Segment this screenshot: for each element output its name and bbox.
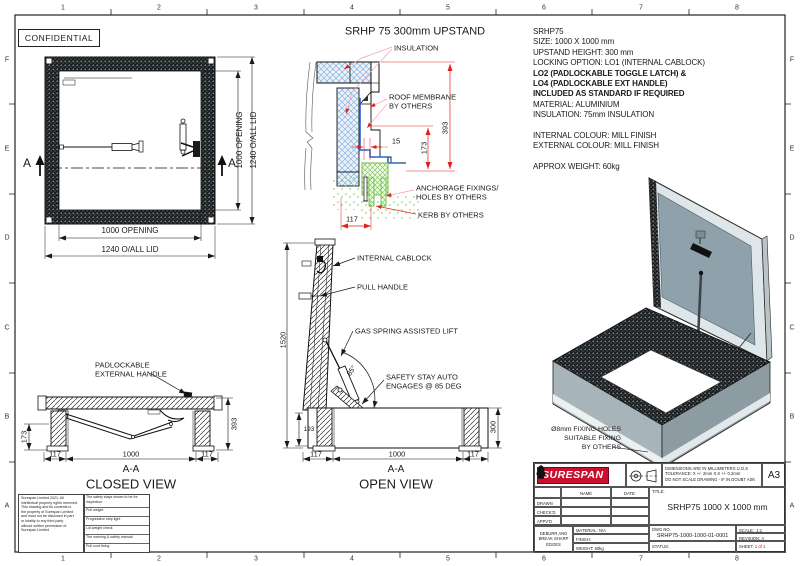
open-dim-opening: 1000 — [389, 450, 406, 458]
spec-line: APPROX WEIGHT: 60kg — [533, 162, 705, 172]
grid-col-label: 4 — [350, 5, 354, 12]
grid-col-label: 3 — [254, 5, 258, 12]
open-dim-1520: 1520 — [279, 332, 287, 349]
label-insulation: INSULATION — [394, 44, 438, 52]
spec-block: SRHP75 SIZE: 1000 X 1000 mm UPSTAND HEIG… — [533, 27, 705, 172]
drawn-name-cell — [561, 498, 611, 507]
checked-row: CHECK'D — [534, 507, 561, 516]
spec-line: LOCKING OPTION: LO1 (INTERNAL CABLOCK) — [533, 58, 705, 68]
label-internal-cablock: INTERNAL CABLOCK — [357, 254, 432, 262]
deburr-cell: DEBURR AND BREAK SHARP EDGES — [534, 525, 573, 553]
upstand-title: SRHP 75 300mm UPSTAND — [345, 27, 485, 38]
dim-kerb-width: 117 — [346, 215, 358, 223]
projection-symbol-cell — [626, 463, 662, 487]
grid-row-label: A — [5, 503, 10, 510]
closed-dim-173: 173 — [20, 431, 28, 444]
status-label: STATUS: — [652, 544, 669, 549]
label-kerb: KERB BY OTHERS — [418, 211, 484, 219]
surespan-emblem-icon — [535, 464, 547, 480]
open-dim-193: 193 — [304, 427, 315, 434]
plan-dim-overall: 1240 O/ALL LID — [101, 246, 158, 254]
notes-cell: DIMENSIONS ARE IN MILLIMETERS U.O.S TOLE… — [662, 463, 762, 487]
upstand-section-drawing — [305, 47, 455, 230]
label-roof-membrane-2: BY OTHERS — [389, 102, 432, 110]
closed-caption: CLOSED VIEW — [86, 478, 176, 491]
spec-line — [533, 152, 705, 162]
label-fixing-line: SUITABLE FIXING — [551, 435, 621, 444]
open-dim-right: 117 — [467, 450, 479, 458]
grid-col-label: 6 — [542, 556, 546, 563]
finish-label: FINISH: — [576, 537, 591, 542]
grid-row-label: A — [790, 503, 795, 510]
grid-col-label: 8 — [735, 556, 739, 563]
grid-col-label: 2 — [157, 556, 161, 563]
sheet-value: 1 of 1 — [755, 544, 765, 549]
grid-col-label: 5 — [446, 5, 450, 12]
label-fixing-holes: Ø8mm FIXING HOLES SUITABLE FIXING BY OTH… — [551, 426, 621, 453]
weight-row: WEIGHT: 60kg — [573, 543, 649, 553]
label-fixing-line: BY OTHERS — [551, 444, 621, 453]
grid-row-label: F — [5, 57, 9, 64]
confidential-stamp: CONFIDENTIAL — [18, 29, 100, 47]
revision-cell: REVISION: A — [736, 533, 786, 541]
finish-row: FINISH: — [573, 534, 649, 543]
revision-value: A — [761, 536, 764, 541]
label-pull-handle: PULL HANDLE — [357, 283, 408, 291]
drawing-sheet: 1 2 3 4 5 6 7 8 1 2 3 4 5 6 7 8 F E D C … — [0, 0, 800, 566]
status-cell: STATUS: — [649, 541, 736, 553]
grid-col-label: 8 — [735, 5, 739, 12]
row-approved: APPV'D — [537, 519, 552, 524]
sheet-label: SHEET: — [739, 544, 754, 549]
grid-col-label: 7 — [639, 556, 643, 563]
closed-section-ref: A-A — [123, 465, 140, 475]
iso-view-drawing — [553, 178, 772, 468]
nd-corner-cell — [534, 487, 561, 498]
grid-col-label: 4 — [350, 556, 354, 563]
drawn-date-cell — [611, 498, 649, 507]
logo-cell: SURESPAN — [534, 463, 626, 487]
label-roof-membrane: ROOF MEMBRANE — [389, 93, 456, 101]
open-dim-left: 117 — [310, 450, 322, 458]
grid-row-label: B — [790, 414, 795, 421]
third-angle-projection-icon — [629, 467, 659, 485]
deburr-line: BREAK SHARP — [535, 536, 572, 541]
drawing-title: SRHP75 1000 X 1000 mm — [650, 502, 785, 512]
checked-date-cell — [611, 507, 649, 516]
name-header-cell: NAME — [561, 487, 611, 498]
label-anchorage: ANCHORAGE FIXINGS/ — [416, 184, 499, 192]
grid-row-label: E — [5, 146, 10, 153]
title-cell: TITLE: SRHP75 1000 X 1000 mm — [649, 487, 786, 525]
label-padlockable: PADLOCKABLE — [95, 361, 149, 369]
label-anchorage-2: HOLES BY OTHERS — [416, 193, 487, 201]
checked-name-cell — [561, 507, 611, 516]
checklist-box: The safety stays shown to be for inspect… — [84, 494, 150, 553]
copyright-box: Surespan Limited 2021. All intellectual … — [18, 494, 84, 553]
grid-col-label: 1 — [61, 556, 65, 563]
grid-row-label: D — [4, 235, 9, 242]
dim-inner-height: 173 — [420, 142, 428, 155]
label-external-handle: EXTERNAL HANDLE — [95, 370, 167, 378]
spec-line: LO2 (PADLOCKABLE TOGGLE LATCH) & — [533, 69, 705, 79]
dim-liner-gap: 15 — [392, 137, 400, 145]
scale-value: 1:1 — [756, 528, 762, 533]
sheet-size-cell: A3 — [762, 463, 786, 487]
closed-dim-left: 117 — [49, 450, 61, 458]
material-value: N/A — [599, 528, 606, 533]
approved-row: APPV'D — [534, 516, 561, 525]
dim-overall-height: 393 — [441, 122, 449, 135]
title-label: TITLE: — [652, 489, 665, 494]
drawn-row: DRAWN — [534, 498, 561, 507]
closed-dim-right: 117 — [201, 450, 213, 458]
spec-line: SIZE: 1000 X 1000 mm — [533, 37, 705, 47]
grid-col-label: 1 — [61, 5, 65, 12]
spec-line — [533, 121, 705, 131]
material-row: MATERIAL: N/A — [573, 525, 649, 534]
grid-row-label: C — [4, 325, 9, 332]
grid-row-label: F — [790, 57, 794, 64]
dwg-no-cell: DWG NO. SRHP75-1000-1000-01-0001 — [649, 525, 736, 541]
sheet-cell: SHEET: 1 of 1 — [736, 541, 786, 553]
grid-row-label: B — [5, 414, 10, 421]
label-fixing-line: Ø8mm FIXING HOLES — [551, 426, 621, 435]
grid-row-label: E — [790, 146, 795, 153]
spec-line: EXTERNAL COLOUR: MILL FINISH — [533, 141, 705, 151]
material-label: MATERIAL: — [576, 528, 598, 533]
plan-dim-opening: 1000 OPENING — [102, 227, 159, 235]
grid-col-label: 7 — [639, 5, 643, 12]
col-date: DATE: — [624, 491, 636, 496]
sheet-size: A3 — [768, 470, 780, 481]
spec-line: INSULATION: 75mm INSULATION — [533, 110, 705, 120]
title-block: SURESPAN DIMENSIONS ARE IN MILLIMETERS U… — [533, 462, 785, 552]
section-marker-a-right: A — [228, 157, 236, 169]
checklist-row: Progressive strip light — [85, 517, 149, 526]
grid-col-label: 6 — [542, 5, 546, 12]
spec-line: MATERIAL: ALUMINIUM — [533, 100, 705, 110]
deburr-line: EDGES — [535, 542, 572, 547]
row-drawn: DRAWN — [537, 501, 553, 506]
open-section-ref: A-A — [388, 465, 405, 475]
revision-label: REVISION: — [739, 536, 760, 541]
col-name: NAME — [580, 491, 592, 496]
closed-dim-393: 393 — [230, 418, 238, 431]
grid-col-label: 2 — [157, 5, 161, 12]
label-safety-stay: SAFETY STAY AUTO — [386, 373, 458, 381]
approved-date-cell — [611, 516, 649, 525]
spec-line: UPSTAND HEIGHT: 300 mm — [533, 48, 705, 58]
label-safety-stay-2: ENGAGES @ 85 DEG — [386, 382, 462, 390]
closed-dim-opening: 1000 — [123, 450, 140, 458]
open-view-drawing — [283, 239, 502, 462]
scale-cell: SCALE: 1:1 — [736, 525, 786, 533]
note-line: DO NOT SCALE DRAWING - IF IN DOUBT ASK — [665, 477, 759, 482]
grid-row-label: C — [789, 325, 794, 332]
copyright-line: Surespan Limited — [20, 528, 82, 533]
plan-dim-opening-v: 1000 OPENING — [236, 112, 244, 169]
label-gas-spring: GAS SPRING ASSISTED LIFT — [355, 327, 458, 335]
scale-label: SCALE: — [739, 528, 754, 533]
grid-col-label: 3 — [254, 556, 258, 563]
plan-dim-overall-v: 1240 O/ALL LID — [250, 111, 258, 168]
checklist-row: Lid weight check — [85, 526, 149, 535]
checklist-row: The safety stays shown to be for inspect… — [85, 495, 149, 508]
spec-line: SRHP75 — [533, 27, 705, 37]
weight-label: WEIGHT: — [576, 546, 593, 551]
checklist-row: Pull cord fixing — [85, 544, 149, 552]
spec-line: INCLUDED AS STANDARD IF REQUIRED — [533, 89, 705, 99]
section-marker-a-left: A — [23, 157, 31, 169]
dwg-number: SRHP75-1000-1000-01-0001 — [650, 533, 735, 539]
row-checked: CHECK'D — [537, 510, 555, 515]
approved-name-cell — [561, 516, 611, 525]
weight-value: 60kg — [595, 546, 604, 551]
spec-line: LO4 (PADLOCKABLE EXT HANDLE) — [533, 79, 705, 89]
spec-line: INTERNAL COLOUR: MILL FINISH — [533, 131, 705, 141]
dwg-label: DWG NO. — [652, 527, 671, 532]
grid-row-label: D — [789, 235, 794, 242]
grid-col-label: 5 — [446, 556, 450, 563]
checklist-row: The warning & safety manual — [85, 535, 149, 544]
surespan-logo: SURESPAN — [537, 467, 609, 484]
date-header-cell: DATE: — [611, 487, 649, 498]
checklist-row: Pull weight — [85, 508, 149, 517]
open-caption: OPEN VIEW — [359, 478, 433, 491]
open-dim-300: 300 — [489, 421, 497, 434]
